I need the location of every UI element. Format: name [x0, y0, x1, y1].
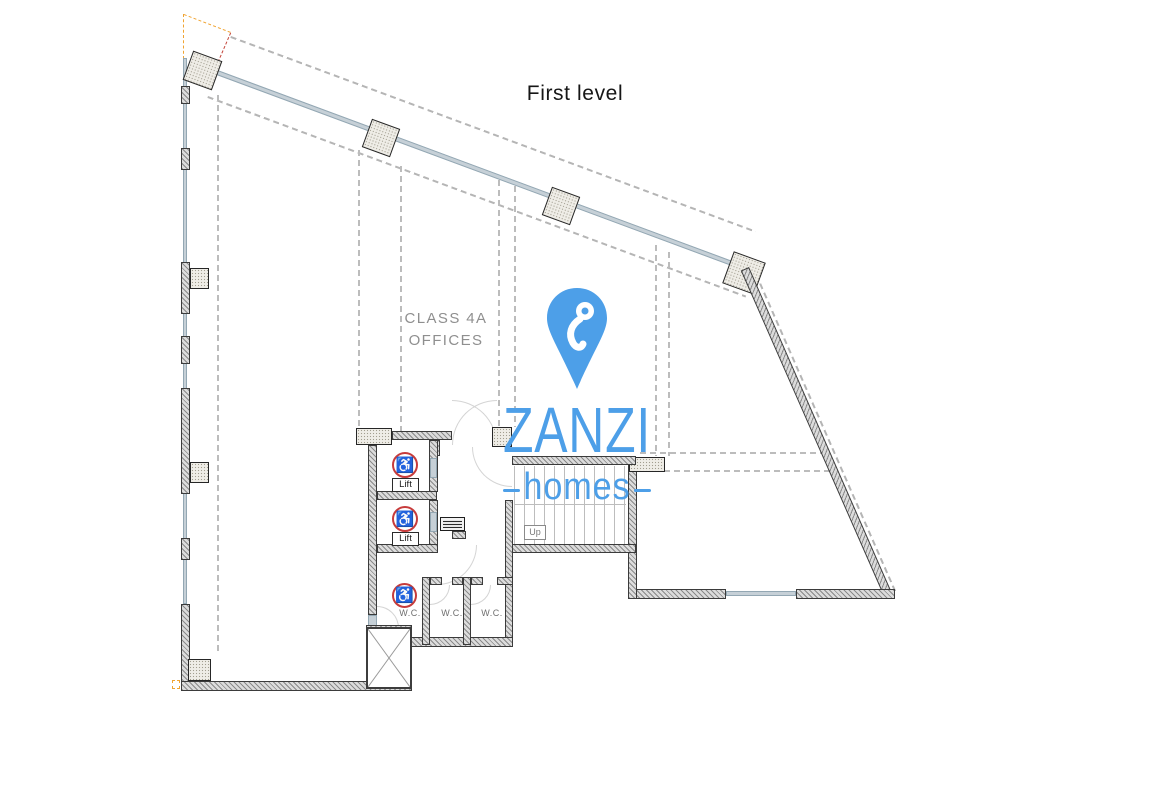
- logo-map-pin: [545, 287, 609, 390]
- wall-segment: [181, 262, 190, 314]
- column: [190, 462, 209, 483]
- lift-accessible-icon: ♿: [392, 452, 418, 478]
- wheelchair-icon: ♿: [396, 458, 415, 473]
- column: [190, 268, 209, 289]
- column: [356, 428, 392, 445]
- stair-up-label: Up: [524, 525, 546, 540]
- wall-segment: [181, 86, 190, 104]
- partition-dashline: [400, 166, 402, 432]
- wall-segment: [430, 577, 442, 585]
- lift-door: [430, 458, 437, 478]
- wall-segment: [628, 589, 726, 599]
- guide-line-orange: [183, 14, 184, 59]
- wall-segment: [377, 491, 437, 500]
- zone-label: CLASS 4A OFFICES: [390, 308, 502, 352]
- lift-label: Lift: [392, 478, 419, 492]
- lift-label: Lift: [392, 532, 419, 546]
- wall-segment: [181, 388, 190, 494]
- wall-segment: [471, 577, 483, 585]
- zone-label-line1: CLASS 4A: [390, 308, 502, 330]
- wall-segment: [741, 267, 892, 597]
- lift-door: [430, 512, 437, 532]
- logo-tagline: homes: [487, 468, 667, 506]
- wheelchair-icon: ♿: [395, 588, 414, 603]
- column: [188, 659, 211, 681]
- wall-segment: [392, 431, 452, 440]
- door-swing-arc: [471, 585, 491, 605]
- window-strip-left: [183, 58, 187, 604]
- window-bottom: [726, 591, 796, 596]
- column: [362, 119, 400, 157]
- fire-hose-reel: [440, 517, 465, 531]
- x-brace-lines: [368, 629, 410, 687]
- page-title: First level: [455, 82, 695, 106]
- wall-segment: [796, 589, 895, 599]
- wc-label: W.C.: [478, 608, 506, 618]
- wall-segment: [452, 577, 463, 585]
- wheelchair-icon: ♿: [396, 512, 415, 527]
- logo-dash-left: [503, 489, 520, 492]
- logo-dash-right: [634, 489, 651, 492]
- wall-segment: [452, 531, 466, 539]
- guide-line-orange: [184, 14, 231, 33]
- wall-segment: [505, 500, 513, 647]
- partition-dashline: [498, 180, 500, 427]
- wc-accessible-icon: ♿: [392, 583, 417, 608]
- wall-segment: [368, 445, 377, 615]
- door-swing-arc: [430, 585, 450, 605]
- wall-segment: [181, 148, 190, 170]
- guide-mark-orange: [172, 680, 180, 689]
- logo-brand: ZANZI: [483, 398, 670, 462]
- wc-label: W.C.: [396, 608, 424, 618]
- right-boundary-dashline: [756, 274, 897, 593]
- partition-dashline: [217, 95, 219, 655]
- floor-plan-canvas: Up ♿ Lift ♿ Lift ♿ W.C. W.C. W.C. First …: [0, 0, 1151, 800]
- wall-segment: [497, 577, 513, 585]
- wall-segment: [505, 544, 636, 553]
- wall-segment: [181, 336, 190, 364]
- lift-accessible-icon: ♿: [392, 506, 418, 532]
- wc-label: W.C.: [438, 608, 466, 618]
- partition-dashline: [358, 150, 360, 432]
- shaft-x-brace: [366, 627, 412, 689]
- column: [183, 51, 223, 91]
- wall-segment: [400, 637, 513, 647]
- partition-dashline: [514, 186, 516, 427]
- partition-dashline: [664, 470, 838, 472]
- wall-segment: [181, 538, 190, 560]
- zone-label-line2: OFFICES: [390, 330, 502, 352]
